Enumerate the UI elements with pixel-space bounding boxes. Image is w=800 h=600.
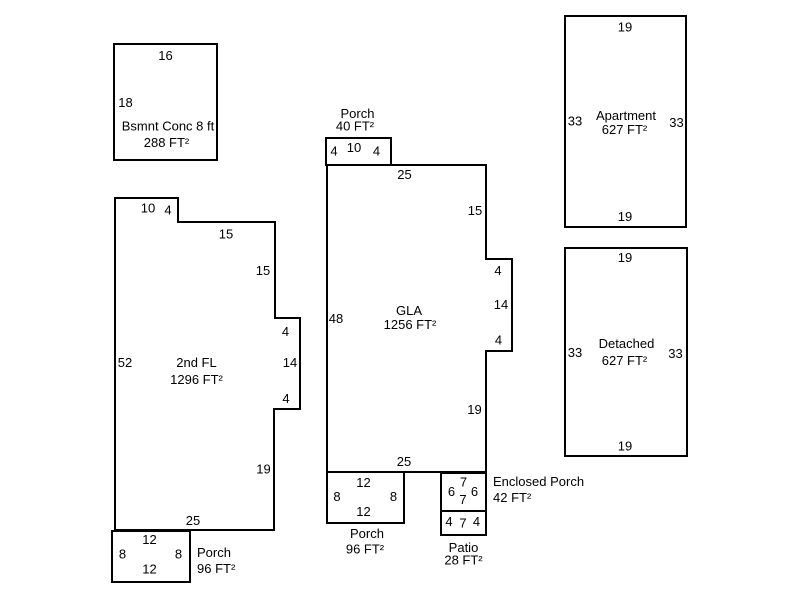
apartment-dim-right: 33 bbox=[669, 115, 683, 130]
porch-s-dim-top: 12 bbox=[356, 475, 370, 490]
detached-name-label: Detached bbox=[599, 336, 655, 351]
porch-sw-dim-top: 12 bbox=[142, 532, 156, 547]
gla-dim-bump-top: 4 bbox=[494, 263, 501, 278]
detached-group: 19 33 Detached 627 FT² 33 19 bbox=[565, 248, 687, 456]
patio-dim-left: 4 bbox=[445, 514, 452, 529]
patio-dim-width: 7 bbox=[459, 516, 466, 531]
bsmnt-dim-left: 18 bbox=[118, 95, 132, 110]
apartment-name-label: Apartment bbox=[596, 108, 656, 123]
porch-front-dim-top: 10 bbox=[347, 140, 361, 155]
porch-front-area-label: 40 FT² bbox=[336, 119, 375, 134]
porch-sw-dim-right: 8 bbox=[175, 547, 182, 562]
gla-dim-right-b: 19 bbox=[467, 402, 481, 417]
bsmnt-name-label: Bsmnt Conc 8 ft bbox=[122, 119, 215, 134]
patio-area-label: 28 FT² bbox=[444, 553, 483, 568]
patio-dim-right: 4 bbox=[473, 514, 480, 529]
second-floor-dim-bump-top: 4 bbox=[282, 324, 289, 339]
second-floor-dim-bump-bottom: 4 bbox=[282, 391, 289, 406]
gla-dim-bump-bottom: 4 bbox=[495, 333, 502, 348]
sketch-canvas: 16 18 Bsmnt Conc 8 ft 288 FT² 10 4 15 15… bbox=[0, 0, 800, 600]
gla-dim-right-a: 15 bbox=[468, 203, 482, 218]
porch-sw-dim-left: 8 bbox=[119, 547, 126, 562]
gla-dim-left: 48 bbox=[329, 311, 343, 326]
porch-sw-dim-bottom: 12 bbox=[142, 562, 156, 577]
second-floor-dim-right-b: 19 bbox=[256, 462, 270, 477]
porch-sw-area-label: 96 FT² bbox=[197, 561, 236, 576]
second-floor-dim-bump-right: 14 bbox=[283, 355, 297, 370]
second-floor-group: 10 4 15 15 4 14 4 19 25 52 2nd FL 1296 F… bbox=[115, 198, 300, 530]
porch-s-dim-right: 8 bbox=[390, 489, 397, 504]
floorplan-sketch: 16 18 Bsmnt Conc 8 ft 288 FT² 10 4 15 15… bbox=[0, 0, 800, 600]
apartment-dim-top: 19 bbox=[618, 20, 632, 35]
apartment-dim-bottom: 19 bbox=[618, 209, 632, 224]
second-floor-name-label: 2nd FL bbox=[176, 355, 216, 370]
detached-dim-bottom: 19 bbox=[618, 439, 632, 454]
second-floor-dim-bottom: 25 bbox=[186, 513, 200, 528]
enclosed-porch-dim-bottom: 7 bbox=[459, 492, 466, 507]
detached-dim-top: 19 bbox=[618, 250, 632, 265]
enclosed-porch-name-label: Enclosed Porch bbox=[493, 474, 584, 489]
enclosed-porch-dim-right: 6 bbox=[471, 484, 478, 499]
porch-s-area-label: 96 FT² bbox=[346, 542, 385, 557]
detached-dim-left: 33 bbox=[568, 345, 582, 360]
porch-front-group: Porch 40 FT² 4 10 4 bbox=[326, 106, 391, 165]
porch-s-dim-bottom: 12 bbox=[356, 504, 370, 519]
apartment-group: 19 33 Apartment 627 FT² 33 19 bbox=[565, 16, 686, 227]
porch-s-dim-left: 8 bbox=[333, 489, 340, 504]
bsmnt-group: 16 18 Bsmnt Conc 8 ft 288 FT² bbox=[114, 44, 217, 160]
enclosed-porch-dim-left: 6 bbox=[448, 484, 455, 499]
porch-front-dim-right: 4 bbox=[373, 144, 380, 159]
second-floor-dim-top-a: 10 bbox=[141, 201, 155, 216]
gla-dim-bump-right: 14 bbox=[494, 297, 508, 312]
gla-name-label: GLA bbox=[396, 303, 422, 318]
enclosed-porch-area-label: 42 FT² bbox=[493, 490, 532, 505]
detached-area-label: 627 FT² bbox=[602, 353, 648, 368]
second-floor-dim-top-b: 15 bbox=[219, 227, 233, 242]
gla-dim-bottom: 25 bbox=[397, 454, 411, 469]
porch-s-group: 12 8 8 12 Porch 96 FT² bbox=[327, 472, 404, 557]
apartment-area-label: 627 FT² bbox=[602, 122, 648, 137]
second-floor-dim-right-a: 15 bbox=[256, 263, 270, 278]
second-floor-area-label: 1296 FT² bbox=[170, 372, 223, 387]
gla-dim-top: 25 bbox=[397, 167, 411, 182]
enclosed-porch-dim-top: 7 bbox=[460, 475, 467, 490]
detached-dim-right: 33 bbox=[668, 346, 682, 361]
gla-group: 25 15 4 14 4 19 25 48 GLA 1256 FT² bbox=[327, 165, 512, 472]
bsmnt-dim-top: 16 bbox=[158, 48, 172, 63]
patio-group: 4 7 4 Patio 28 FT² bbox=[441, 511, 486, 568]
second-floor-dim-left: 52 bbox=[118, 355, 132, 370]
porch-front-dim-left: 4 bbox=[330, 144, 337, 159]
bsmnt-area-label: 288 FT² bbox=[144, 135, 190, 150]
apartment-dim-left: 33 bbox=[568, 114, 582, 129]
gla-area-label: 1256 FT² bbox=[384, 317, 437, 332]
porch-sw-name-label: Porch bbox=[197, 545, 231, 560]
second-floor-dim-step: 4 bbox=[164, 203, 171, 218]
porch-sw-group: 12 8 8 12 Porch 96 FT² bbox=[112, 531, 236, 582]
porch-s-name-label: Porch bbox=[350, 526, 384, 541]
enclosed-porch-group: 7 6 6 7 Enclosed Porch 42 FT² bbox=[441, 473, 584, 511]
